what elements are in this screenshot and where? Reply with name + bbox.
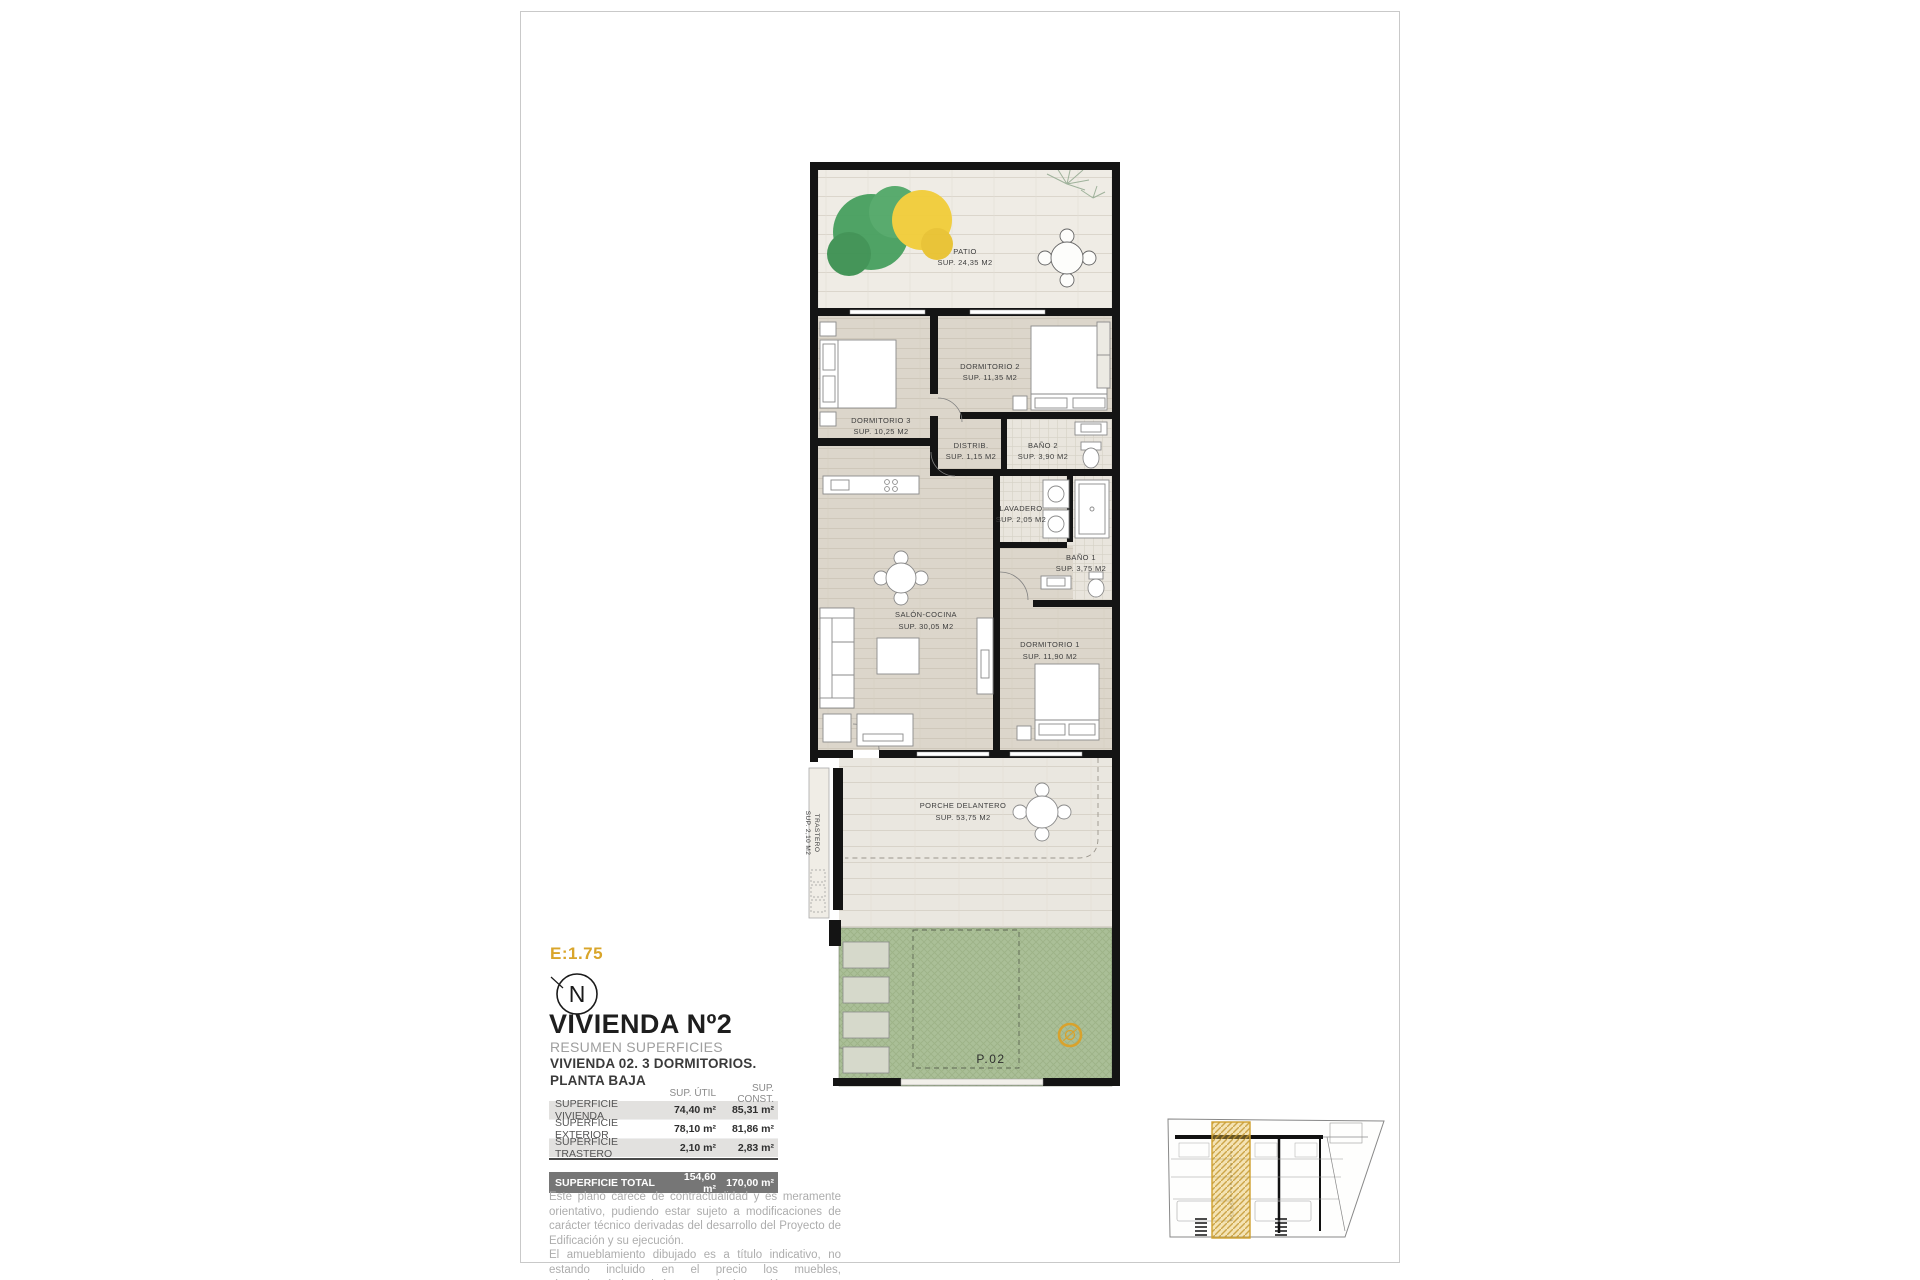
row-label: SUPERFICIE TRASTERO: [549, 1136, 669, 1160]
row-util: 78,10 m²: [669, 1123, 720, 1135]
svg-text:SUP. 1,15 M2: SUP. 1,15 M2: [946, 452, 997, 461]
svg-text:SUP. 30,05 M2: SUP. 30,05 M2: [898, 622, 953, 631]
svg-text:SUP. 11,35 M2: SUP. 11,35 M2: [963, 373, 1018, 382]
row-const: 85,31 m²: [720, 1104, 778, 1116]
page-title: VIVIENDA Nº2: [549, 1009, 732, 1040]
plot-label: P.02: [976, 1052, 1005, 1066]
svg-text:DORMITORIO 3: DORMITORIO 3: [851, 416, 911, 425]
svg-text:DISTRIB.: DISTRIB.: [954, 441, 989, 450]
svg-text:SUP. 2,05 M2: SUP. 2,05 M2: [996, 515, 1047, 524]
coffee-table: [877, 638, 919, 674]
svg-text:DORMITORIO 2: DORMITORIO 2: [960, 362, 1020, 371]
svg-text:SUP. 2,10 M2: SUP. 2,10 M2: [805, 811, 811, 855]
svg-text:SALÓN-COCINA: SALÓN-COCINA: [895, 610, 957, 619]
total-label: SUPERFICIE TOTAL: [549, 1177, 669, 1189]
kitchen-counter: [823, 476, 919, 494]
legal-disclaimer: Este plano carece de contractualidad y e…: [549, 1190, 841, 1280]
plan-screenshot-canvas: PATIO SUP. 24,35 M2 DORMITORIO 3 SUP. 10…: [0, 0, 1920, 1280]
svg-text:PATIO: PATIO: [953, 247, 976, 256]
row-util: 2,10 m²: [669, 1142, 720, 1154]
col-header-util: SUP. ÚTIL: [669, 1088, 720, 1099]
svg-text:SUP. 3,90 M2: SUP. 3,90 M2: [1018, 452, 1069, 461]
svg-text:TRASTERO: TRASTERO: [813, 814, 820, 853]
svg-text:SUP. 11,90 M2: SUP. 11,90 M2: [1023, 652, 1078, 661]
disclaimer-line: Este plano carece de contractualidad y e…: [549, 1190, 841, 1248]
svg-text:BAÑO 1: BAÑO 1: [1066, 553, 1096, 562]
surface-table: SUP. ÚTIL SUP. CONST. SUPERFICIE VIVIEND…: [549, 1086, 778, 1193]
sofa: [820, 608, 854, 708]
svg-text:BAÑO 2: BAÑO 2: [1028, 441, 1058, 450]
svg-text:DORMITORIO 1: DORMITORIO 1: [1020, 640, 1080, 649]
row-const: 2,83 m²: [720, 1142, 778, 1154]
porch-floor: [839, 758, 1112, 928]
col-header-const: SUP. CONST.: [720, 1083, 778, 1105]
total-const: 170,00 m²: [720, 1177, 778, 1189]
disclaimer-line: El amueblamiento dibujado es a título in…: [549, 1248, 841, 1280]
svg-text:PORCHE DELANTERO: PORCHE DELANTERO: [920, 801, 1006, 810]
row-const: 81,86 m²: [720, 1123, 778, 1135]
svg-text:LAVADERO: LAVADERO: [1000, 504, 1043, 513]
tv-bench: [823, 714, 913, 746]
site-key-plan: [1155, 1103, 1390, 1263]
page-subtitle: RESUMEN SUPERFICIES: [550, 1039, 723, 1055]
table-row: SUPERFICIE TRASTERO 2,10 m² 2,83 m²: [549, 1139, 778, 1157]
svg-text:SUP. 10,25 M2: SUP. 10,25 M2: [853, 427, 908, 436]
svg-text:SUP. 53,75 M2: SUP. 53,75 M2: [935, 813, 990, 822]
dwelling-type-line: VIVIENDA 02. 3 DORMITORIOS.: [550, 1056, 756, 1071]
svg-text:SUP. 24,35 M2: SUP. 24,35 M2: [937, 258, 992, 267]
svg-text:SUP. 3,75 M2: SUP. 3,75 M2: [1056, 564, 1107, 573]
kitchen-island-sink: [981, 650, 989, 678]
highlighted-unit: [1212, 1122, 1250, 1238]
row-util: 74,40 m²: [669, 1104, 720, 1116]
svg-text:N: N: [569, 981, 586, 1007]
floor-plan: PATIO SUP. 24,35 M2 DORMITORIO 3 SUP. 10…: [805, 158, 1125, 1090]
scale-label: E:1.75: [550, 944, 603, 964]
